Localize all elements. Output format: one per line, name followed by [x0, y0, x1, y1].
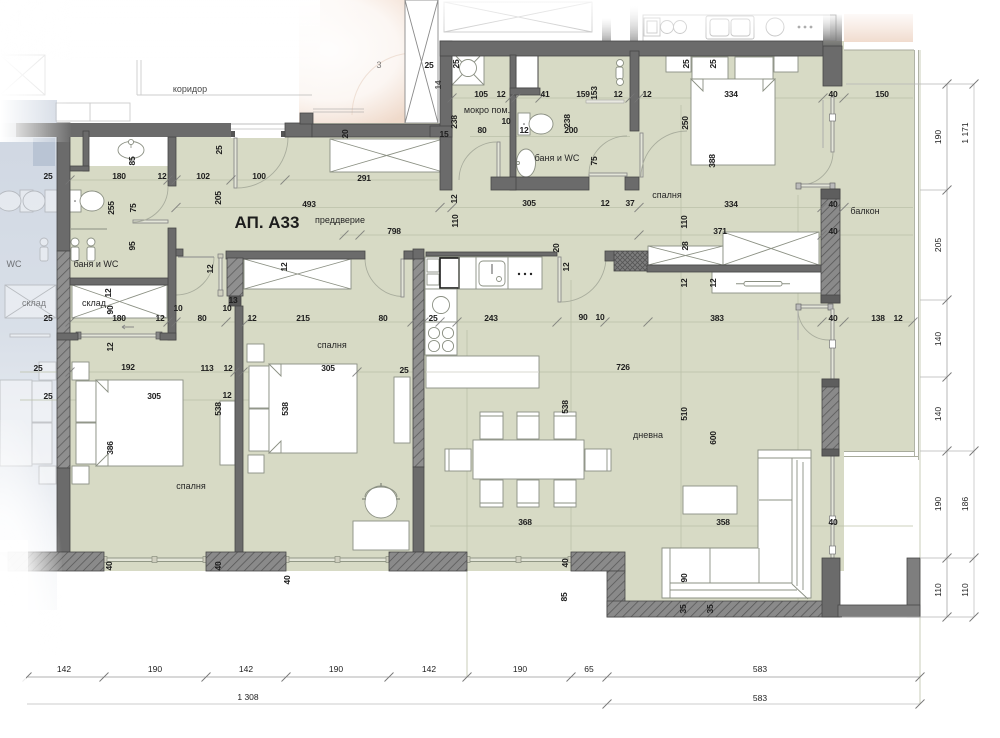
svg-text:383: 383: [710, 313, 724, 323]
svg-text:АП. А33: АП. А33: [235, 213, 300, 232]
svg-text:583: 583: [753, 664, 767, 674]
svg-text:12: 12: [708, 278, 718, 288]
svg-text:25: 25: [708, 59, 718, 69]
svg-text:85: 85: [559, 592, 569, 602]
svg-text:10: 10: [222, 303, 232, 313]
svg-text:186: 186: [960, 497, 970, 511]
svg-text:25: 25: [399, 365, 409, 375]
svg-text:65: 65: [584, 664, 594, 674]
svg-text:12: 12: [105, 342, 115, 352]
svg-text:12: 12: [679, 278, 689, 288]
svg-text:250: 250: [680, 116, 690, 130]
svg-text:40: 40: [560, 558, 570, 568]
svg-text:20: 20: [551, 243, 561, 253]
svg-text:1 308: 1 308: [237, 692, 259, 702]
svg-text:190: 190: [933, 497, 943, 511]
svg-text:140: 140: [933, 407, 943, 421]
svg-text:спалня: спалня: [176, 481, 206, 491]
svg-text:12: 12: [247, 313, 257, 323]
svg-text:90: 90: [578, 312, 588, 322]
svg-text:37: 37: [625, 198, 635, 208]
svg-text:25: 25: [451, 59, 461, 69]
svg-text:12: 12: [642, 89, 652, 99]
svg-text:баня и WC: баня и WC: [74, 259, 119, 269]
svg-text:102: 102: [196, 171, 210, 181]
svg-text:12: 12: [519, 125, 529, 135]
svg-text:75: 75: [128, 203, 138, 213]
svg-text:138: 138: [871, 313, 885, 323]
svg-text:12: 12: [613, 89, 623, 99]
svg-text:15: 15: [439, 129, 449, 139]
svg-text:110: 110: [960, 583, 970, 597]
svg-text:334: 334: [724, 89, 738, 99]
svg-text:12: 12: [155, 313, 165, 323]
svg-text:80: 80: [477, 125, 487, 135]
svg-text:12: 12: [205, 264, 215, 274]
svg-text:коридор: коридор: [173, 84, 207, 94]
svg-text:600: 600: [708, 431, 718, 445]
svg-text:538: 538: [280, 402, 290, 416]
svg-text:180: 180: [112, 171, 126, 181]
svg-text:40: 40: [213, 561, 223, 571]
svg-text:балкон: балкон: [850, 206, 879, 216]
svg-text:41: 41: [540, 89, 550, 99]
svg-text:10: 10: [173, 303, 183, 313]
svg-text:25: 25: [214, 145, 224, 155]
svg-text:дневна: дневна: [633, 430, 663, 440]
svg-text:спалня: спалня: [317, 340, 347, 350]
svg-text:12: 12: [157, 171, 167, 181]
svg-text:40: 40: [282, 575, 292, 585]
svg-text:100: 100: [252, 171, 266, 181]
svg-text:142: 142: [57, 664, 71, 674]
svg-text:12: 12: [449, 194, 459, 204]
svg-text:12: 12: [893, 313, 903, 323]
svg-text:371: 371: [713, 226, 727, 236]
svg-text:110: 110: [679, 215, 689, 229]
svg-text:25: 25: [43, 171, 53, 181]
svg-text:25: 25: [33, 363, 43, 373]
svg-text:35: 35: [678, 604, 688, 614]
svg-text:538: 538: [560, 400, 570, 414]
svg-text:192: 192: [121, 362, 135, 372]
svg-text:склад: склад: [82, 298, 107, 308]
svg-text:238: 238: [562, 114, 572, 128]
svg-text:10: 10: [501, 116, 511, 126]
svg-text:305: 305: [522, 198, 536, 208]
svg-text:583: 583: [753, 693, 767, 703]
svg-text:291: 291: [357, 173, 371, 183]
svg-text:80: 80: [378, 313, 388, 323]
svg-text:преддверие: преддверие: [315, 215, 365, 225]
svg-text:190: 190: [513, 664, 527, 674]
svg-text:40: 40: [828, 517, 838, 527]
svg-text:75: 75: [589, 156, 599, 166]
svg-text:склад: склад: [22, 298, 47, 308]
svg-text:140: 140: [933, 332, 943, 346]
svg-text:142: 142: [239, 664, 253, 674]
svg-text:190: 190: [148, 664, 162, 674]
svg-text:мокро пом.: мокро пом.: [464, 105, 510, 115]
svg-text:25: 25: [681, 59, 691, 69]
svg-text:25: 25: [424, 60, 434, 70]
svg-text:баня и WC: баня и WC: [535, 153, 580, 163]
svg-text:798: 798: [387, 226, 401, 236]
svg-text:334: 334: [724, 199, 738, 209]
svg-text:12: 12: [103, 288, 113, 298]
svg-text:255: 255: [106, 201, 116, 215]
svg-text:538: 538: [213, 402, 223, 416]
svg-text:25: 25: [43, 391, 53, 401]
svg-text:25: 25: [428, 313, 438, 323]
svg-text:113: 113: [200, 363, 214, 373]
svg-text:726: 726: [616, 362, 630, 372]
svg-text:28: 28: [680, 241, 690, 251]
svg-text:386: 386: [105, 441, 115, 455]
svg-text:спалня: спалня: [652, 190, 682, 200]
svg-text:85: 85: [127, 156, 137, 166]
svg-text:40: 40: [104, 561, 114, 571]
svg-text:142: 142: [422, 664, 436, 674]
svg-text:12: 12: [496, 89, 506, 99]
svg-text:190: 190: [933, 130, 943, 144]
svg-text:153: 153: [589, 86, 599, 100]
svg-text:243: 243: [484, 313, 498, 323]
svg-text:12: 12: [600, 198, 610, 208]
svg-text:12: 12: [222, 390, 232, 400]
svg-text:25: 25: [43, 313, 53, 323]
svg-text:388: 388: [707, 154, 717, 168]
svg-text:190: 190: [329, 664, 343, 674]
svg-text:110: 110: [933, 583, 943, 597]
svg-text:110: 110: [450, 214, 460, 228]
svg-text:10: 10: [595, 312, 605, 322]
svg-text:12: 12: [279, 262, 289, 272]
svg-text:3: 3: [376, 60, 381, 70]
svg-text:358: 358: [716, 517, 730, 527]
svg-text:40: 40: [828, 199, 838, 209]
svg-text:510: 510: [679, 407, 689, 421]
svg-text:493: 493: [302, 199, 316, 209]
svg-text:205: 205: [213, 191, 223, 205]
svg-text:20: 20: [340, 129, 350, 139]
svg-text:95: 95: [127, 241, 137, 251]
svg-text:80: 80: [197, 313, 207, 323]
svg-text:150: 150: [875, 89, 889, 99]
svg-text:215: 215: [296, 313, 310, 323]
svg-text:WC: WC: [7, 259, 22, 269]
svg-text:238: 238: [449, 115, 459, 129]
svg-text:40: 40: [828, 89, 838, 99]
svg-text:305: 305: [147, 391, 161, 401]
svg-text:40: 40: [828, 313, 838, 323]
svg-text:12: 12: [561, 262, 571, 272]
svg-text:368: 368: [518, 517, 532, 527]
svg-text:14: 14: [433, 80, 443, 90]
svg-text:105: 105: [474, 89, 488, 99]
svg-text:205: 205: [933, 238, 943, 252]
svg-text:40: 40: [828, 226, 838, 236]
svg-text:90: 90: [679, 573, 689, 583]
svg-text:305: 305: [321, 363, 335, 373]
svg-text:180: 180: [112, 313, 126, 323]
svg-text:35: 35: [705, 604, 715, 614]
svg-text:1 171: 1 171: [960, 122, 970, 144]
svg-text:12: 12: [223, 363, 233, 373]
